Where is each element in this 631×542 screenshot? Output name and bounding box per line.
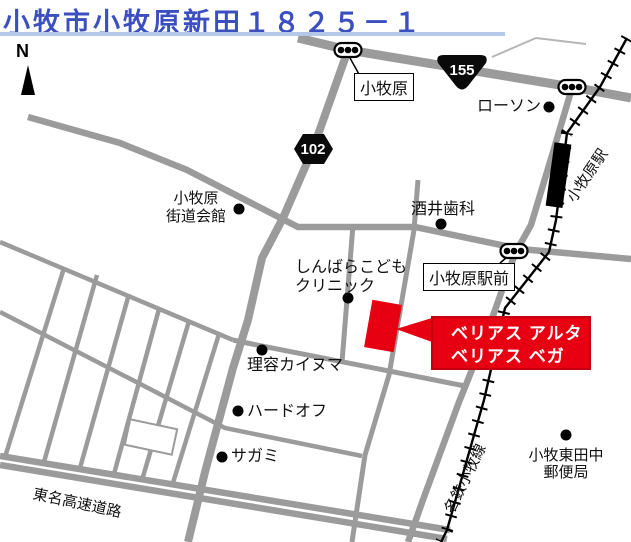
overpass-shape <box>492 38 586 58</box>
hardoff-label: ハードオフ <box>247 403 327 421</box>
post-office-line1: 小牧東田中 <box>523 447 609 464</box>
target-callout: ベリアス アルタ ベリアス ベガ <box>431 316 591 370</box>
kaido-hall-label: 小牧原 街道会館 <box>156 190 236 226</box>
rikai-barber-label: 理容カイヌマ <box>247 357 343 375</box>
route-102-number: 102 <box>300 141 325 158</box>
hardoff-dot <box>233 406 244 417</box>
main-ns-road <box>188 50 348 542</box>
kaido-hall-line2: 街道会館 <box>156 208 236 226</box>
lawson-label: ローソン <box>477 98 541 116</box>
city-block-outline <box>125 419 177 454</box>
shinbara-line2: クリニック <box>295 277 407 296</box>
callout-line2: ベリアス ベガ <box>451 345 589 368</box>
traffic-light-icon <box>335 43 362 57</box>
post-office-label: 小牧東田中 郵便局 <box>523 447 609 481</box>
callout-pointer <box>396 318 432 342</box>
shinbara-clinic-label: しんばらこども クリニック <box>295 258 407 296</box>
sakai-dental-label: 酒井歯科 <box>407 201 479 219</box>
kaido-hall-line1: 小牧原 <box>156 190 236 208</box>
rikai-barber-dot <box>257 345 268 356</box>
traffic-light-icon <box>559 80 586 94</box>
post-office-dot <box>561 430 572 441</box>
post-office-line2: 郵便局 <box>523 464 609 481</box>
route-155-number: 155 <box>449 62 474 79</box>
title-underline <box>0 32 505 36</box>
route-badge-102: 102 <box>294 134 333 164</box>
sagami-dot <box>217 452 228 463</box>
traffic-light-icon <box>501 244 528 258</box>
komakihara-boxed-label: 小牧原 <box>354 73 414 101</box>
sagami-label: サガミ <box>231 448 279 466</box>
callout-line1: ベリアス アルタ <box>451 322 589 345</box>
map-page: 155 102 小牧市小牧原新田１８２５－１ N 小牧原 小牧原駅前 ローソン … <box>0 0 631 542</box>
lawson-dot <box>544 102 555 113</box>
ekimae-boxed-label: 小牧原駅前 <box>423 263 515 291</box>
north-label: N <box>16 41 29 62</box>
shinbara-line1: しんばらこども <box>295 258 407 277</box>
north-arrow-icon <box>21 65 35 95</box>
sakai-dental-dot <box>436 219 447 230</box>
